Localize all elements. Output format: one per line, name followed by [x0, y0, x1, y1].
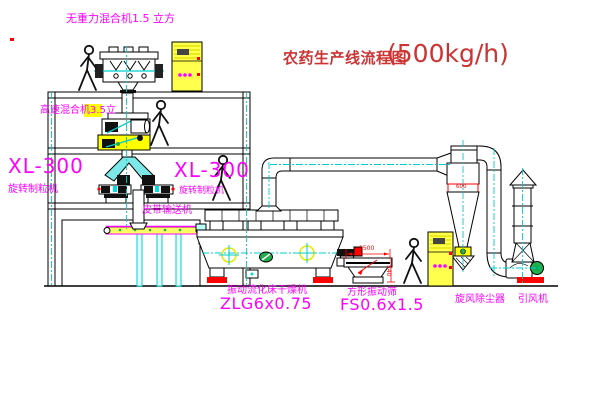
dryer-model: ZLG6x0.75 [220, 296, 312, 312]
worker-second-floor [151, 101, 168, 145]
high-speed-mixer [98, 113, 150, 157]
mid-mixer-label: 高速混合机3.5立 [40, 106, 116, 116]
exhaust-duct [257, 153, 451, 211]
granulator-left-name: 旋转制粒机 [8, 185, 58, 195]
gravity-free-mixer [94, 47, 164, 113]
screen-model: FS0.6x1.5 [340, 297, 424, 313]
exhaust-stack [510, 170, 536, 262]
flow-diagram: 无重力混合机1.5 立方 农药生产线流程图 (500kg/h) 高速混合机3.5… [0, 0, 600, 403]
induced-draft-fan [506, 259, 544, 283]
outlet-pipe [477, 146, 510, 277]
belt-conveyor [104, 227, 202, 287]
granulator-left-model: XL-300 [8, 156, 84, 176]
cyclone-label: 旋风除尘器 [455, 295, 505, 305]
screen-height-dim: 540 [385, 265, 391, 276]
control-cabinet-top [172, 42, 202, 91]
control-cabinet-ground [428, 232, 453, 286]
granulator-right [141, 175, 175, 203]
fluid-bed-dryer [196, 210, 362, 283]
top-mixer-label: 无重力混合机1.5 立方 [66, 13, 175, 24]
worker-top-floor [79, 46, 96, 90]
granulator-right-name: 旋转制粒机 [179, 187, 224, 196]
granulator-right-model: XL-300 [174, 160, 250, 180]
worker-ground [404, 239, 421, 283]
belt-conveyor-label: 皮带输送机 [142, 206, 192, 216]
diagram-capacity: (500kg/h) [387, 41, 509, 66]
screen-length-dim: 1500 [359, 246, 374, 252]
cyclone-diameter-dim: 600 [456, 185, 467, 191]
fan-label: 引风机 [518, 295, 548, 305]
